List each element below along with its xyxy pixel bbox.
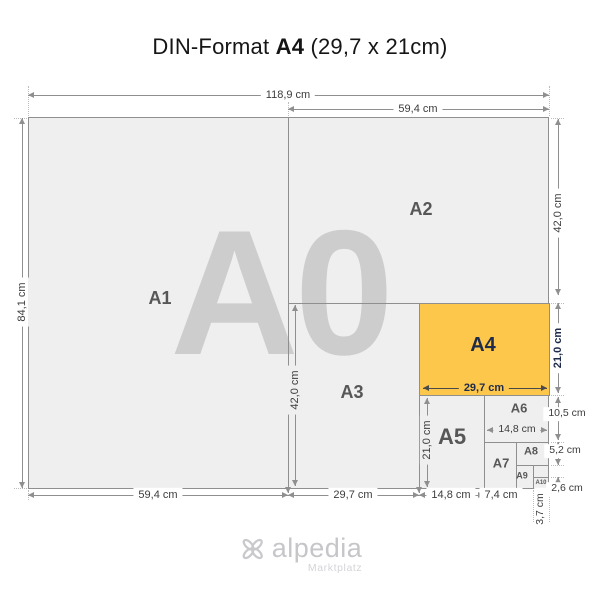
arrowhead-up (555, 397, 561, 403)
dim-label-a7-width: 7,4 cm (479, 488, 522, 502)
page-title: DIN-Format A4 (29,7 x 21cm) (0, 34, 600, 60)
divider-a10-top (533, 477, 549, 478)
arrowhead-up (292, 305, 298, 311)
arrowhead-down (555, 459, 561, 465)
label-a4: A4 (470, 335, 496, 355)
arrowhead-left (487, 427, 493, 433)
dim-label-a5-height: 21,0 cm (420, 415, 434, 464)
label-a1: A1 (148, 289, 171, 307)
title-format: A4 (276, 34, 305, 59)
dim-label-a2-height: 42,0 cm (551, 188, 565, 237)
extension-arrow (419, 479, 420, 493)
extension-line (14, 488, 27, 489)
watermark-a0: A0 (170, 204, 390, 382)
alpedia-logo-icon (238, 534, 268, 569)
extension-arrow (288, 479, 289, 493)
dim-label-a4-height: 21,0 cm (551, 323, 565, 373)
extension-line (551, 395, 564, 396)
dim-label-a6-width: 14,8 cm (493, 423, 540, 437)
arrowhead-down (292, 480, 298, 486)
dim-label-a2-width: 59,4 cm (393, 102, 442, 116)
arrowhead-down (19, 482, 25, 488)
dim-label-a3-width: 29,7 cm (328, 488, 377, 502)
dim-label-a4-width: 29,7 cm (459, 381, 509, 395)
arrowhead-right (543, 106, 549, 112)
arrowhead-right (541, 385, 547, 391)
arrowhead-left (423, 385, 429, 391)
arrowhead-up (555, 119, 561, 125)
label-a2: A2 (409, 200, 432, 218)
label-a10: A10 (535, 480, 546, 486)
din-format-diagram: DIN-Format A4 (29,7 x 21cm) A0 A1 A2 A3 … (0, 0, 600, 600)
label-a5: A5 (438, 426, 466, 448)
label-a7: A7 (493, 457, 510, 470)
dim-label-a0-height: 84,1 cm (15, 277, 29, 326)
logo-text: alpedia Marktplatz (272, 534, 363, 574)
arrowhead-down (285, 487, 291, 493)
dim-label-a6-height: 10,5 cm (543, 407, 590, 421)
dim-label-a10-width: 3,7 cm (534, 488, 548, 530)
dim-label-a3-height: 42,0 cm (288, 365, 302, 414)
dim-label-a5-width: 14,8 cm (426, 488, 475, 502)
arrowhead-right (543, 92, 549, 98)
dim-label-a8-height: 5,2 cm (544, 444, 586, 458)
extension-line (551, 465, 564, 466)
arrowhead-down (424, 481, 430, 487)
arrowhead-left (28, 92, 34, 98)
arrowhead-up (424, 398, 430, 404)
logo-name: alpedia (272, 534, 363, 564)
title-prefix: DIN-Format (152, 34, 275, 59)
arrowhead-down (555, 387, 561, 393)
dim-label-a1-width: 59,4 cm (133, 488, 182, 502)
extension-line (28, 86, 29, 116)
label-a3: A3 (340, 383, 363, 401)
extension-line (549, 86, 550, 116)
label-a9: A9 (516, 472, 528, 481)
arrowhead-down (416, 487, 422, 493)
title-suffix: (29,7 x 21cm) (304, 34, 447, 59)
arrowhead-right (541, 427, 547, 433)
arrowhead-down (555, 434, 561, 440)
logo-subtitle: Marktplatz (308, 562, 362, 574)
arrowhead-up (555, 303, 561, 309)
arrowhead-up (19, 118, 25, 124)
label-a8: A8 (524, 447, 538, 458)
dim-label-a0-width: 118,9 cm (261, 88, 315, 102)
arrowhead-left (28, 492, 34, 498)
alpedia-logo: alpedia Marktplatz (238, 534, 363, 574)
arrowhead-left (288, 106, 294, 112)
dim-label-a10-height: 2,6 cm (546, 482, 588, 496)
label-a6: A6 (511, 402, 528, 415)
arrowhead-down (555, 289, 561, 295)
